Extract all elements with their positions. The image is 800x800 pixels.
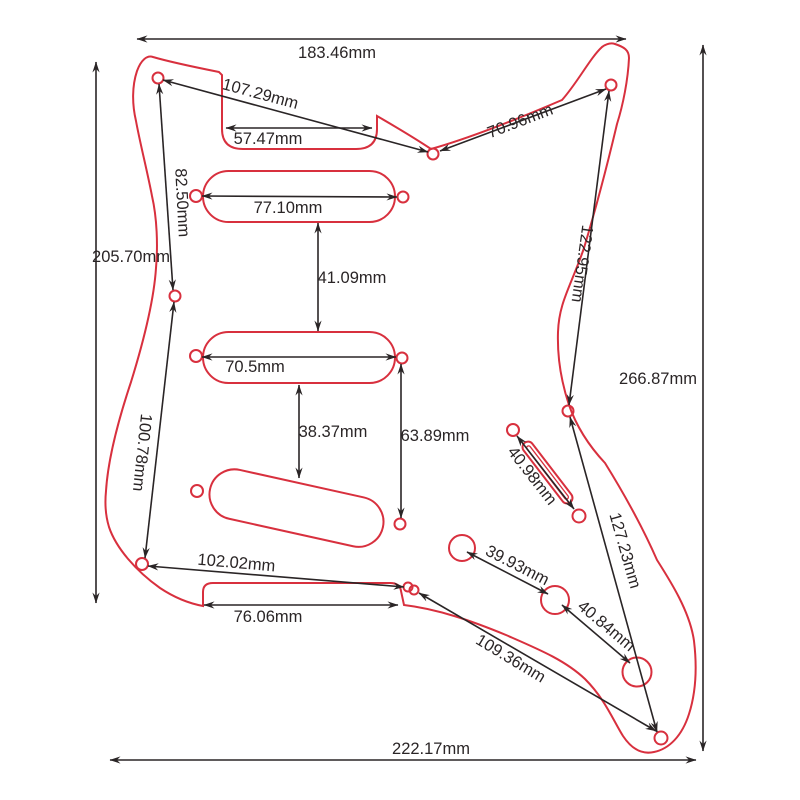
volume-pot-hole bbox=[449, 535, 475, 561]
dim-label-266-87mm: 266.87mm bbox=[619, 370, 697, 388]
dim-label-82-50mm: 82.50mm bbox=[171, 168, 193, 238]
screw-hole bbox=[606, 80, 617, 91]
dim-label-70-96mm: 70.96mm bbox=[485, 101, 556, 142]
dim-label-41-09mm: 41.09mm bbox=[318, 269, 387, 287]
dim-line-109-36mm bbox=[419, 593, 656, 731]
dim-label-76-06mm: 76.06mm bbox=[234, 608, 303, 626]
screw-hole bbox=[573, 510, 586, 523]
dim-label-183-46mm: 183.46mm bbox=[298, 44, 376, 62]
dim-label-40-84mm: 40.84mm bbox=[574, 597, 638, 655]
screw-hole bbox=[395, 519, 406, 530]
dim-label-70-5mm: 70.5mm bbox=[225, 358, 285, 376]
dim-line-127-23mm bbox=[570, 417, 657, 732]
dim-label-107-29mm: 107.29mm bbox=[220, 75, 300, 113]
dim-label-222-17mm: 222.17mm bbox=[392, 740, 470, 758]
dim-label-122-95mm: 122.95mm bbox=[568, 224, 597, 304]
screw-hole bbox=[190, 350, 202, 362]
dim-line-77-10mm bbox=[202, 196, 397, 197]
tone1-pot-hole bbox=[541, 586, 569, 614]
dim-label-38-37mm: 38.37mm bbox=[299, 423, 368, 441]
dim-label-63-89mm: 63.89mm bbox=[401, 427, 470, 445]
dim-label-77-10mm: 77.10mm bbox=[254, 199, 323, 217]
screw-hole bbox=[507, 424, 519, 436]
dim-label-205-70mm: 205.70mm bbox=[92, 248, 170, 266]
screw-hole bbox=[397, 353, 408, 364]
screw-hole bbox=[655, 732, 668, 745]
dimension-labels: 183.46mm 107.29mm 57.47mm 70.96mm 82.50m… bbox=[92, 44, 697, 758]
bridge-pickup-cutout bbox=[205, 465, 389, 552]
screw-hole bbox=[170, 291, 181, 302]
screw-hole bbox=[191, 485, 203, 497]
screw-hole bbox=[428, 149, 439, 160]
dim-label-100-78mm: 100.78mm bbox=[129, 413, 155, 492]
screw-hole bbox=[153, 73, 164, 84]
screw-hole bbox=[136, 558, 148, 570]
dim-label-109-36mm: 109.36mm bbox=[473, 631, 549, 687]
dim-label-40-98mm: 40.98mm bbox=[504, 443, 561, 508]
dim-label-57-47mm: 57.47mm bbox=[234, 130, 303, 148]
screw-hole bbox=[398, 192, 409, 203]
pickguard-diagram: 183.46mm 107.29mm 57.47mm 70.96mm 82.50m… bbox=[0, 0, 800, 800]
